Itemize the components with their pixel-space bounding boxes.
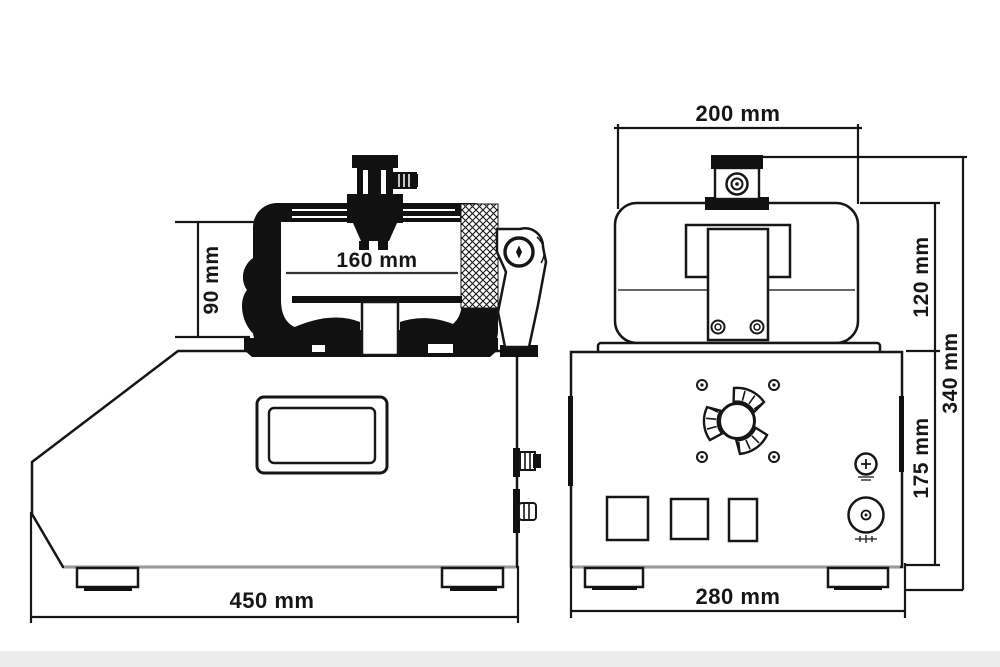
front-view [568, 155, 904, 590]
button-3 [729, 499, 757, 541]
clamp-pedestal [362, 302, 398, 355]
dim-label-120mm: 120 mm [910, 236, 933, 317]
button-1 [607, 497, 648, 540]
flange-notch-1 [312, 345, 325, 352]
front-knob [705, 155, 769, 210]
dim-label-160mm: 160 mm [336, 249, 417, 272]
button-2 [671, 499, 708, 539]
technical-drawing-page: 90 mm 160 mm 450 mm 200 mm 120 mm 175 mm… [0, 0, 1000, 667]
fan-hub [720, 404, 755, 439]
side-display [257, 397, 387, 473]
technical-drawing: 90 mm 160 mm 450 mm 200 mm 120 mm 175 mm… [0, 0, 1000, 667]
dim-label-175mm: 175 mm [910, 417, 933, 498]
footer-strip [0, 651, 1000, 667]
dim-label-450mm: 450 mm [230, 588, 315, 613]
front-left-strip [568, 396, 573, 486]
front-buttons [607, 497, 757, 541]
front-right-strip [899, 396, 904, 472]
dim-label-280mm: 280 mm [696, 584, 781, 609]
power-socket-dot [865, 514, 868, 517]
dim-label-200mm: 200 mm [696, 101, 781, 126]
dim-label-340mm: 340 mm [939, 332, 962, 413]
dim-label-90mm: 90 mm [200, 245, 223, 314]
clamp-hatch-block [461, 204, 498, 308]
flange-notch-2 [428, 344, 453, 353]
